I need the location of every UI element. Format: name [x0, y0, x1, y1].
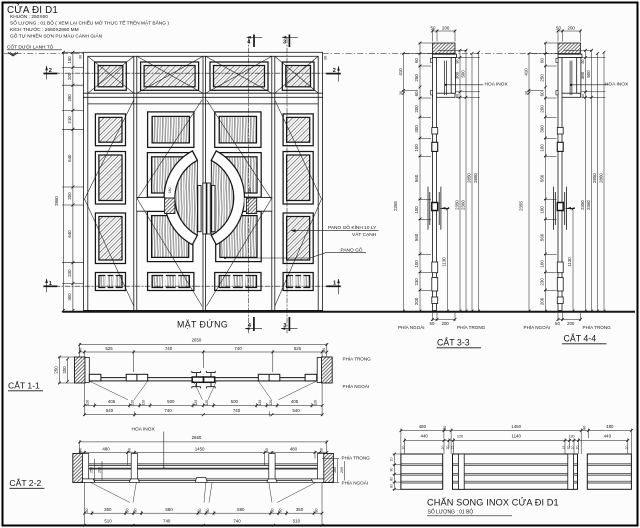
- svg-text:2: 2: [333, 68, 336, 74]
- svg-text:120: 120: [131, 400, 135, 406]
- svg-text:250: 250: [414, 74, 419, 82]
- svg-text:525: 525: [294, 346, 302, 351]
- svg-text:PHÍA TRONG: PHÍA TRONG: [457, 324, 486, 330]
- svg-text:100: 100: [414, 260, 419, 268]
- svg-text:120: 120: [194, 400, 198, 406]
- svg-text:60: 60: [414, 58, 419, 63]
- svg-text:525: 525: [105, 346, 113, 351]
- svg-text:540: 540: [106, 408, 114, 413]
- svg-text:15: 15: [562, 446, 566, 450]
- svg-text:1140: 1140: [511, 434, 521, 439]
- svg-text:740: 740: [234, 346, 242, 351]
- svg-text:500: 500: [167, 399, 175, 404]
- svg-text:80: 80: [133, 509, 137, 513]
- svg-text:640: 640: [67, 154, 72, 162]
- svg-text:20: 20: [441, 446, 445, 450]
- svg-text:100: 100: [414, 144, 419, 152]
- svg-text:80: 80: [314, 509, 318, 513]
- svg-text:350: 350: [104, 507, 112, 512]
- svg-text:PHÍA NGOÀI: PHÍA NGOÀI: [343, 383, 370, 389]
- svg-text:60: 60: [456, 94, 460, 98]
- svg-text:30: 30: [323, 56, 327, 60]
- svg-text:200: 200: [340, 467, 344, 473]
- svg-text:440: 440: [604, 434, 612, 439]
- svg-text:HOA INOX: HOA INOX: [485, 82, 509, 88]
- svg-text:120: 120: [258, 400, 262, 406]
- svg-text:PHÍA NGOÀI: PHÍA NGOÀI: [524, 324, 551, 330]
- svg-text:50: 50: [79, 348, 83, 352]
- svg-text:PHÍA NGOÀI: PHÍA NGOÀI: [398, 324, 425, 330]
- svg-text:KÍCH THƯỚC : 2660X2860 MM: KÍCH THƯỚC : 2660X2860 MM: [10, 26, 79, 33]
- svg-text:200: 200: [67, 72, 72, 80]
- svg-text:500: 500: [461, 70, 466, 78]
- svg-text:120: 120: [141, 400, 145, 406]
- svg-text:80: 80: [583, 426, 587, 430]
- svg-text:1130: 1130: [442, 257, 447, 267]
- svg-text:580: 580: [165, 507, 173, 512]
- svg-text:405: 405: [108, 399, 116, 404]
- svg-text:80: 80: [390, 484, 394, 488]
- svg-text:740: 740: [163, 519, 171, 524]
- svg-text:80: 80: [198, 509, 202, 513]
- svg-text:HOA INOX: HOA INOX: [132, 427, 156, 433]
- svg-text:2650: 2650: [192, 435, 202, 440]
- svg-text:1450: 1450: [511, 424, 521, 429]
- svg-text:180: 180: [168, 188, 172, 194]
- svg-text:KHUÔN : 250X60: KHUÔN : 250X60: [10, 13, 48, 20]
- svg-text:480: 480: [290, 446, 298, 451]
- svg-text:PHÍA NGOÀI: PHÍA NGOÀI: [342, 480, 369, 486]
- svg-text:CẮT 2-2: CẮT 2-2: [9, 478, 41, 488]
- svg-text:200: 200: [67, 192, 72, 200]
- svg-text:30: 30: [399, 91, 403, 95]
- svg-text:380: 380: [455, 71, 460, 79]
- svg-text:580: 580: [237, 507, 245, 512]
- svg-text:500: 500: [231, 399, 239, 404]
- svg-text:80: 80: [125, 509, 129, 513]
- svg-text:740: 740: [165, 346, 173, 351]
- svg-text:440: 440: [421, 434, 429, 439]
- svg-text:120: 120: [86, 400, 90, 406]
- svg-text:230: 230: [414, 278, 419, 286]
- svg-text:50: 50: [79, 448, 83, 452]
- svg-text:200: 200: [414, 105, 419, 113]
- svg-text:480: 480: [102, 446, 110, 451]
- svg-text:150: 150: [67, 56, 72, 64]
- svg-text:405: 405: [291, 399, 299, 404]
- svg-text:PANO GỖ KÍNH 10 LY: PANO GỖ KÍNH 10 LY: [328, 224, 377, 231]
- svg-text:20: 20: [446, 446, 450, 450]
- svg-text:280: 280: [67, 94, 72, 102]
- svg-text:120: 120: [568, 435, 574, 439]
- svg-text:740: 740: [164, 408, 172, 413]
- svg-text:80: 80: [206, 509, 210, 513]
- svg-text:120: 120: [205, 400, 209, 406]
- svg-text:2355: 2355: [393, 201, 398, 211]
- svg-text:380: 380: [333, 467, 337, 473]
- svg-text:20: 20: [576, 446, 580, 450]
- svg-text:200: 200: [62, 366, 67, 374]
- svg-text:30: 30: [79, 55, 83, 59]
- svg-text:560: 560: [414, 174, 419, 182]
- svg-text:80: 80: [265, 448, 269, 452]
- svg-text:210: 210: [67, 116, 72, 124]
- svg-text:MẶT ĐỨNG: MẶT ĐỨNG: [177, 320, 228, 330]
- svg-text:80: 80: [128, 448, 132, 452]
- svg-text:2850: 2850: [467, 173, 472, 183]
- svg-text:120: 120: [314, 400, 318, 406]
- svg-text:300: 300: [67, 293, 72, 301]
- svg-text:410: 410: [398, 68, 403, 76]
- svg-text:200: 200: [414, 297, 419, 305]
- svg-text:PHÍA TRONG: PHÍA TRONG: [343, 356, 372, 362]
- svg-text:80: 80: [85, 509, 89, 513]
- svg-text:2: 2: [49, 68, 52, 74]
- svg-text:15: 15: [451, 446, 455, 450]
- svg-text:250: 250: [90, 467, 94, 473]
- svg-text:SỐ LƯỢNG : 01 BỘ: SỐ LƯỢNG : 01 BỘ: [428, 509, 474, 516]
- svg-text:2360: 2360: [461, 200, 466, 210]
- svg-text:540: 540: [292, 408, 300, 413]
- svg-text:20: 20: [390, 457, 394, 461]
- svg-text:560: 560: [414, 233, 419, 241]
- svg-text:740: 740: [233, 408, 241, 413]
- svg-text:VÁT CẠNH: VÁT CẠNH: [352, 231, 377, 238]
- svg-text:640: 640: [67, 230, 72, 238]
- svg-text:250: 250: [54, 366, 59, 374]
- svg-text:480: 480: [606, 424, 614, 429]
- svg-text:80: 80: [456, 60, 460, 64]
- svg-text:200: 200: [442, 26, 450, 31]
- svg-text:CẮT 1-1: CẮT 1-1: [8, 380, 40, 390]
- svg-text:80: 80: [390, 468, 394, 472]
- svg-text:20: 20: [625, 446, 629, 450]
- svg-text:HOA INOX: HOA INOX: [605, 82, 629, 88]
- svg-text:2860: 2860: [54, 196, 59, 206]
- svg-text:PANO GỖ: PANO GỖ: [341, 246, 363, 253]
- svg-text:CỐT DƯỚI LANH TÔ: CỐT DƯỚI LANH TÔ: [7, 43, 54, 50]
- svg-text:200: 200: [442, 321, 450, 326]
- svg-text:120: 120: [457, 435, 463, 439]
- svg-text:PHÍA TRONG: PHÍA TRONG: [342, 455, 371, 461]
- svg-text:20: 20: [402, 446, 406, 450]
- svg-text:230: 230: [67, 269, 72, 277]
- svg-text:740: 740: [233, 519, 241, 524]
- svg-text:50: 50: [322, 348, 326, 352]
- svg-text:PHÍA TRONG: PHÍA TRONG: [583, 324, 612, 330]
- svg-text:510: 510: [293, 519, 301, 524]
- svg-text:350: 350: [296, 507, 304, 512]
- svg-text:80: 80: [270, 509, 274, 513]
- svg-text:300: 300: [414, 125, 419, 133]
- svg-text:50: 50: [430, 321, 435, 326]
- svg-text:510: 510: [104, 519, 112, 524]
- svg-text:480: 480: [419, 424, 427, 429]
- svg-text:60: 60: [414, 91, 419, 96]
- svg-text:1450: 1450: [195, 446, 205, 451]
- svg-text:2860: 2860: [473, 173, 478, 183]
- svg-text:200: 200: [98, 467, 102, 473]
- svg-text:50: 50: [320, 448, 324, 452]
- svg-text:20: 20: [567, 446, 571, 450]
- svg-text:2650: 2650: [192, 338, 202, 343]
- svg-text:80: 80: [390, 477, 394, 481]
- svg-text:100: 100: [414, 206, 419, 214]
- svg-text:120: 120: [269, 400, 273, 406]
- svg-text:80: 80: [278, 509, 282, 513]
- svg-text:CẮT 3-3: CẮT 3-3: [437, 337, 470, 347]
- svg-text:CHẤN SONG INOX CỬA ĐI D1: CHẤN SONG INOX CỬA ĐI D1: [427, 497, 559, 508]
- svg-text:CẮT 4-4: CẮT 4-4: [564, 333, 597, 343]
- svg-text:50: 50: [431, 26, 436, 31]
- svg-text:80: 80: [443, 426, 447, 430]
- svg-text:CỬA ĐI D1: CỬA ĐI D1: [7, 4, 58, 16]
- svg-text:2350: 2350: [455, 200, 460, 210]
- svg-text:20: 20: [571, 446, 575, 450]
